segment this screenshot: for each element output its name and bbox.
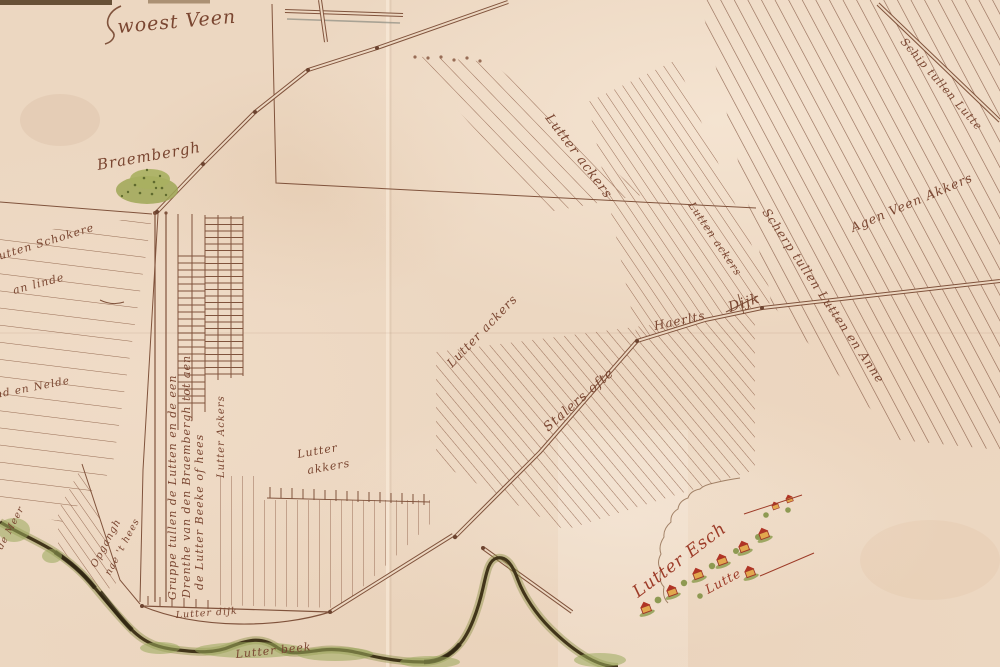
label-lutter-small-2: akkers [306,457,351,477]
parcel-boundary-left [0,202,152,214]
field-hatch-lutter-ackers-central [436,312,755,530]
braembergh-hill [116,169,178,204]
paper-stain [860,520,1000,600]
paper-stain [20,94,100,146]
label-lutter-ackers-vertical: Lutter Ackers [216,395,227,479]
map-edge-mark [148,0,210,4]
label-lutter-small-1: Lutter [295,441,339,461]
label-gruppe-line-3: de Lutter Beeke of hees [193,434,206,590]
historical-map-canvas: woest Veen Braembergh Lutter ackers Lutt… [0,0,1000,667]
label-gruppe-line-2: Drenthe van den Braembergh tot aen [180,355,193,599]
house-icon [734,538,754,557]
label-lutte: Lutte [701,565,743,597]
road-shadow-grey [287,19,400,23]
map-page: woest Veen Braembergh Lutter ackers Lutt… [0,0,1000,667]
label-gruppe-line-1: Gruppe tullen de Lutten en de een [166,375,179,600]
house-icon [740,563,760,582]
strip-long-verticals [155,213,166,602]
field-hatch-bottom-strips [212,476,432,608]
strip-rungs-right [205,218,243,374]
map-edge-mark [0,0,112,5]
field-hatch-lutten-schokere [0,216,152,522]
label-braembergh: Braembergh [95,138,203,174]
label-woest-veen: woest Veen [117,6,238,38]
label-lutter-dijk: Lutter dijk [174,606,238,621]
